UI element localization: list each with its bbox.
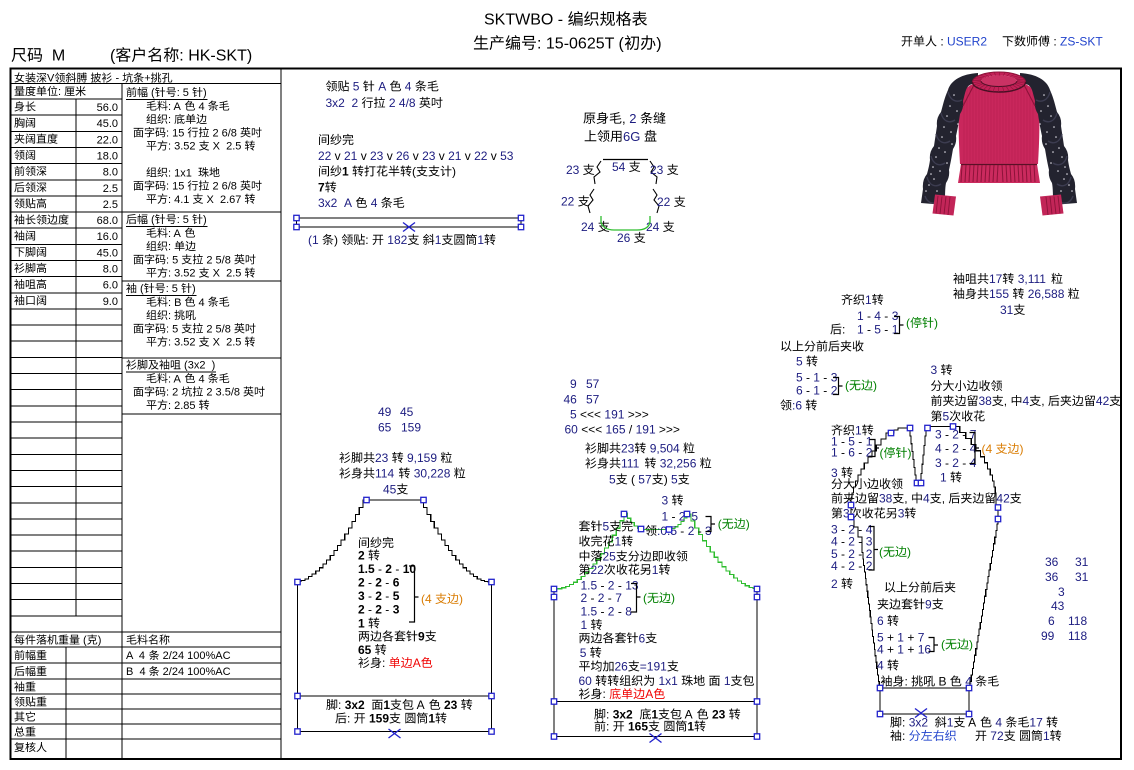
svg-text:: A: : A: [168, 101, 183, 113]
svg-text:X 2.5: X 2.5: [210, 141, 245, 153]
svg-text:1: 1: [428, 712, 435, 726]
svg-text::6: :6: [792, 399, 802, 413]
svg-text:9,504: 9,504: [650, 442, 680, 456]
svg-text:5: 5: [609, 473, 616, 487]
svg-text:23: 23: [650, 163, 664, 177]
svg-text:36: 36: [1045, 555, 1059, 569]
svg-text:M: M: [43, 48, 65, 65]
svg-text:2 5/8: 2 5/8: [203, 323, 234, 335]
svg-text:155: 155: [989, 287, 1009, 301]
svg-text:A: A: [414, 698, 427, 712]
svg-text::: :: [168, 114, 174, 126]
svg-text:A 4: A 4: [126, 650, 148, 662]
svg-text:9.0: 9.0: [103, 296, 118, 308]
svg-text:<<<: <<<: [580, 408, 601, 422]
svg-text:6G: 6G: [623, 129, 640, 144]
svg-text:16.0: 16.0: [97, 231, 118, 243]
svg-text:v: v: [357, 149, 370, 163]
svg-text:(4: (4: [421, 592, 435, 606]
svg-text:3x2: 3x2: [345, 698, 365, 712]
svg-text:26: 26: [396, 149, 410, 163]
svg-text::: :: [58, 86, 64, 98]
svg-text:2/24 100%AC: 2/24 100%AC: [160, 650, 231, 662]
svg-text:3: 3: [393, 603, 400, 617]
svg-text:v: v: [409, 149, 422, 163]
svg-text:v: v: [461, 149, 474, 163]
svg-text:17: 17: [1029, 716, 1043, 730]
svg-text:99: 99: [1041, 629, 1055, 643]
svg-text::: :: [842, 323, 845, 337]
svg-text:32,256: 32,256: [660, 457, 697, 471]
svg-text:6: 6: [1048, 614, 1055, 628]
svg-text:21: 21: [344, 149, 358, 163]
svg-text:): ): [192, 283, 196, 295]
svg-text:: HK-SKT): : HK-SKT): [179, 48, 252, 65]
svg-text:6.0: 6.0: [103, 280, 118, 292]
svg-text:43: 43: [1051, 599, 1065, 613]
svg-text:(: (: [148, 214, 155, 226]
svg-text:ZS-SKT: ZS-SKT: [1060, 35, 1103, 49]
svg-text:: 15: : 15: [166, 127, 187, 139]
svg-text::: :: [603, 687, 610, 701]
svg-text:+: +: [907, 643, 914, 657]
svg-text::: :: [382, 656, 389, 670]
svg-text:): ): [671, 591, 675, 605]
svg-text:4: 4: [196, 373, 208, 385]
svg-text:2/24 100%AC: 2/24 100%AC: [160, 666, 231, 678]
svg-text:(1: (1: [308, 233, 319, 247]
svg-text::: :: [937, 35, 947, 49]
svg-text:57: 57: [638, 473, 652, 487]
svg-text:: A: : A: [168, 228, 183, 240]
svg-text:v: v: [435, 149, 448, 163]
svg-text:22: 22: [657, 195, 671, 209]
svg-text:1: 1: [651, 708, 658, 722]
svg-text:23: 23: [712, 708, 726, 722]
svg-text:3x2: 3x2: [909, 716, 929, 730]
svg-text:53: 53: [500, 149, 514, 163]
svg-text:18.0: 18.0: [97, 151, 118, 163]
svg-text:45.0: 45.0: [97, 247, 118, 259]
svg-text:1: 1: [687, 720, 694, 734]
svg-text:1: 1: [892, 323, 899, 337]
svg-text:-: -: [112, 73, 122, 85]
svg-text:38: 38: [879, 492, 893, 506]
svg-text:17: 17: [989, 272, 1003, 286]
svg-text:A: A: [413, 656, 421, 670]
svg-text:1: 1: [947, 716, 954, 730]
svg-text:45: 45: [400, 405, 414, 419]
svg-text:2 5/8: 2 5/8: [203, 254, 234, 266]
svg-text:: 3.52: : 3.52: [168, 337, 199, 349]
svg-text:): ): [1020, 442, 1024, 456]
svg-text:(: (: [845, 379, 849, 393]
svg-text:(: (: [80, 635, 87, 647]
svg-text:A: A: [378, 80, 386, 94]
svg-text:3: 3: [1058, 585, 1065, 599]
svg-text:A: A: [344, 196, 352, 210]
svg-text:(4: (4: [982, 442, 996, 456]
svg-text:: 3.52: : 3.52: [168, 268, 199, 280]
svg-text:+: +: [887, 643, 894, 657]
svg-text:(: (: [879, 545, 883, 559]
svg-text:(: (: [110, 48, 116, 65]
svg-text:: 5: : 5: [166, 283, 181, 295]
svg-text:V: V: [47, 73, 55, 85]
svg-text:6: 6: [393, 576, 400, 590]
svg-text:4: 4: [1023, 394, 1030, 408]
svg-text:: 2.85: : 2.85: [168, 400, 199, 412]
svg-text:(: (: [148, 87, 155, 99]
svg-text:5: 5: [691, 510, 698, 524]
svg-text:165: 165: [606, 423, 626, 437]
svg-text:3x2: 3x2: [318, 196, 344, 210]
svg-text:>>>: >>>: [628, 408, 649, 422]
svg-text:1: 1: [615, 535, 622, 549]
svg-text:1.5: 1.5: [581, 605, 598, 619]
svg-text::: :: [1050, 35, 1060, 49]
svg-text:: 1x1: : 1x1: [168, 167, 198, 179]
svg-text:22: 22: [474, 149, 488, 163]
svg-text:191: 191: [636, 423, 656, 437]
svg-text:9,159: 9,159: [407, 451, 437, 465]
svg-text:9: 9: [570, 377, 577, 391]
svg-text:): ): [908, 446, 912, 460]
svg-text:191: 191: [604, 408, 624, 422]
svg-text:2: 2: [866, 559, 873, 573]
svg-text:38: 38: [979, 394, 993, 408]
svg-text:: B: : B: [168, 297, 185, 309]
svg-text:4: 4: [196, 297, 208, 309]
svg-text:60: 60: [565, 423, 579, 437]
svg-text:): ): [907, 545, 911, 559]
svg-text:26,588: 26,588: [1028, 287, 1065, 301]
svg-text:22: 22: [318, 149, 332, 163]
svg-text:(: (: [137, 283, 144, 295]
svg-text:: A: : A: [168, 373, 183, 385]
svg-text:(: (: [412, 165, 416, 179]
svg-text:: 5: : 5: [177, 214, 192, 226]
svg-text:): ): [203, 87, 207, 99]
svg-text:: 15-0625T (: : 15-0625T (: [537, 36, 625, 53]
svg-text:68.0: 68.0: [97, 215, 118, 227]
svg-text:): ): [203, 214, 207, 226]
svg-text:159: 159: [401, 421, 421, 435]
svg-text:65: 65: [378, 421, 392, 435]
svg-text:4: 4: [923, 492, 930, 506]
svg-text:(: (: [643, 591, 647, 605]
svg-text:X 2.5: X 2.5: [210, 268, 245, 280]
svg-text:+: +: [144, 73, 150, 85]
svg-text:42: 42: [996, 492, 1010, 506]
svg-text:8.0: 8.0: [103, 264, 118, 276]
svg-text::: :: [168, 241, 174, 253]
svg-text:9: 9: [418, 630, 425, 644]
svg-text:5: 5: [943, 410, 950, 424]
svg-text:1: 1: [652, 563, 659, 577]
svg-text:165: 165: [628, 720, 648, 734]
svg-text:22.0: 22.0: [97, 134, 118, 146]
svg-text:: 3.52: : 3.52: [168, 141, 199, 153]
svg-text:2 3.5/8: 2 3.5/8: [203, 387, 243, 399]
svg-text:2 6/8: 2 6/8: [209, 181, 240, 193]
svg-text:65: 65: [358, 643, 372, 657]
svg-text:X 2.5: X 2.5: [210, 337, 245, 349]
svg-text:1: 1: [477, 233, 484, 247]
svg-text:25: 25: [603, 550, 617, 564]
svg-text:31: 31: [1075, 555, 1089, 569]
svg-text:1x1: 1x1: [659, 674, 679, 688]
svg-text:5: 5: [671, 473, 678, 487]
svg-text:23: 23: [375, 451, 389, 465]
svg-text:B 4: B 4: [126, 666, 149, 678]
svg-text::: :: [902, 729, 909, 743]
svg-text:: 5: : 5: [177, 87, 192, 99]
svg-text:9: 9: [925, 598, 932, 612]
svg-text:1: 1: [1043, 729, 1050, 743]
svg-text:1: 1: [435, 233, 442, 247]
svg-text:4: 4: [196, 101, 208, 113]
svg-text:26: 26: [617, 231, 631, 245]
svg-text:21: 21: [448, 149, 462, 163]
svg-text:(: (: [880, 446, 884, 460]
svg-text:=191: =191: [640, 660, 667, 674]
svg-text:118: 118: [1068, 614, 1087, 628]
svg-text:: 4.1: : 4.1: [168, 194, 192, 206]
svg-text:>>>: >>>: [659, 423, 680, 437]
svg-text:v: v: [487, 149, 500, 163]
svg-text:: 5: : 5: [166, 254, 181, 266]
svg-text:45.0: 45.0: [97, 118, 118, 130]
svg-text:2 6/8: 2 6/8: [209, 127, 240, 139]
svg-text:31: 31: [1000, 303, 1014, 317]
svg-text:): ): [459, 592, 463, 606]
svg-text:): ): [934, 316, 938, 330]
svg-text:6: 6: [639, 631, 646, 645]
svg-text:SKTWBO -: SKTWBO -: [484, 12, 568, 29]
svg-text:182: 182: [387, 233, 407, 247]
svg-text::: :: [168, 310, 174, 322]
svg-text:4/8: 4/8: [399, 96, 416, 110]
svg-text:v: v: [331, 149, 344, 163]
svg-text:5: 5: [393, 589, 400, 603]
svg-text:A: A: [645, 687, 653, 701]
svg-text:56.0: 56.0: [97, 102, 118, 114]
svg-text:46: 46: [564, 393, 578, 407]
svg-text:1.5: 1.5: [358, 562, 375, 576]
svg-text:42: 42: [1096, 394, 1110, 408]
svg-text:1: 1: [724, 674, 731, 688]
svg-text:USER2: USER2: [947, 35, 987, 49]
svg-text:1: 1: [383, 698, 390, 712]
svg-text:118: 118: [1068, 629, 1087, 643]
svg-text:X 2.67: X 2.67: [204, 194, 245, 206]
svg-text:23: 23: [422, 149, 436, 163]
svg-text:,: ,: [622, 111, 629, 126]
svg-text:1: 1: [865, 293, 872, 307]
svg-text:): ): [452, 165, 456, 179]
svg-text:2.5: 2.5: [103, 199, 118, 211]
svg-text:): ): [746, 517, 750, 531]
svg-text:5: 5: [603, 520, 610, 534]
svg-text:23: 23: [621, 442, 635, 456]
svg-text:3x2: 3x2: [326, 96, 346, 110]
svg-text:57: 57: [586, 377, 600, 391]
svg-text:26: 26: [615, 660, 629, 674]
svg-text:24: 24: [581, 220, 595, 234]
svg-text:(: (: [906, 316, 910, 330]
svg-text:(: (: [941, 638, 945, 652]
svg-text:57: 57: [586, 393, 600, 407]
svg-text:(3x2 ): (3x2 ): [181, 360, 215, 372]
svg-text:31: 31: [1075, 570, 1089, 584]
svg-text:2.5: 2.5: [103, 183, 118, 195]
svg-text:45: 45: [383, 483, 397, 497]
svg-text:49: 49: [378, 405, 392, 419]
svg-text:8.0: 8.0: [103, 167, 118, 179]
svg-text:30,228: 30,228: [414, 467, 451, 481]
svg-text:7: 7: [615, 591, 622, 605]
svg-text:23: 23: [370, 149, 384, 163]
svg-text:(: (: [718, 517, 722, 531]
svg-text:36: 36: [1045, 570, 1059, 584]
svg-text:: 5: : 5: [166, 323, 181, 335]
svg-text:16: 16: [918, 643, 932, 657]
svg-text:2: 2: [831, 384, 838, 398]
svg-text:: 2: : 2: [166, 387, 181, 399]
svg-text:): ): [969, 638, 973, 652]
svg-text:54: 54: [612, 160, 626, 174]
svg-text:<<<: <<<: [581, 423, 602, 437]
svg-text:B: B: [935, 675, 950, 689]
svg-text:22: 22: [561, 195, 575, 209]
svg-text:7: 7: [318, 181, 325, 195]
svg-text:3,111: 3,111: [1018, 272, 1047, 286]
svg-text:v: v: [383, 149, 396, 163]
svg-text:2: 2: [629, 111, 636, 126]
svg-text:72: 72: [990, 729, 1004, 743]
svg-text:22: 22: [591, 563, 605, 577]
svg-text:114: 114: [375, 467, 394, 481]
svg-text:60: 60: [579, 674, 593, 688]
svg-text:23: 23: [566, 163, 580, 177]
svg-text:): ): [656, 36, 661, 53]
svg-text:111: 111: [621, 457, 640, 471]
svg-text:): ): [873, 379, 877, 393]
svg-text:): ): [98, 635, 102, 647]
svg-text:: 15: : 15: [166, 181, 187, 193]
svg-text:23: 23: [444, 698, 458, 712]
svg-text:159: 159: [369, 712, 389, 726]
svg-text:A: A: [965, 716, 978, 730]
svg-text:3: 3: [898, 507, 905, 521]
